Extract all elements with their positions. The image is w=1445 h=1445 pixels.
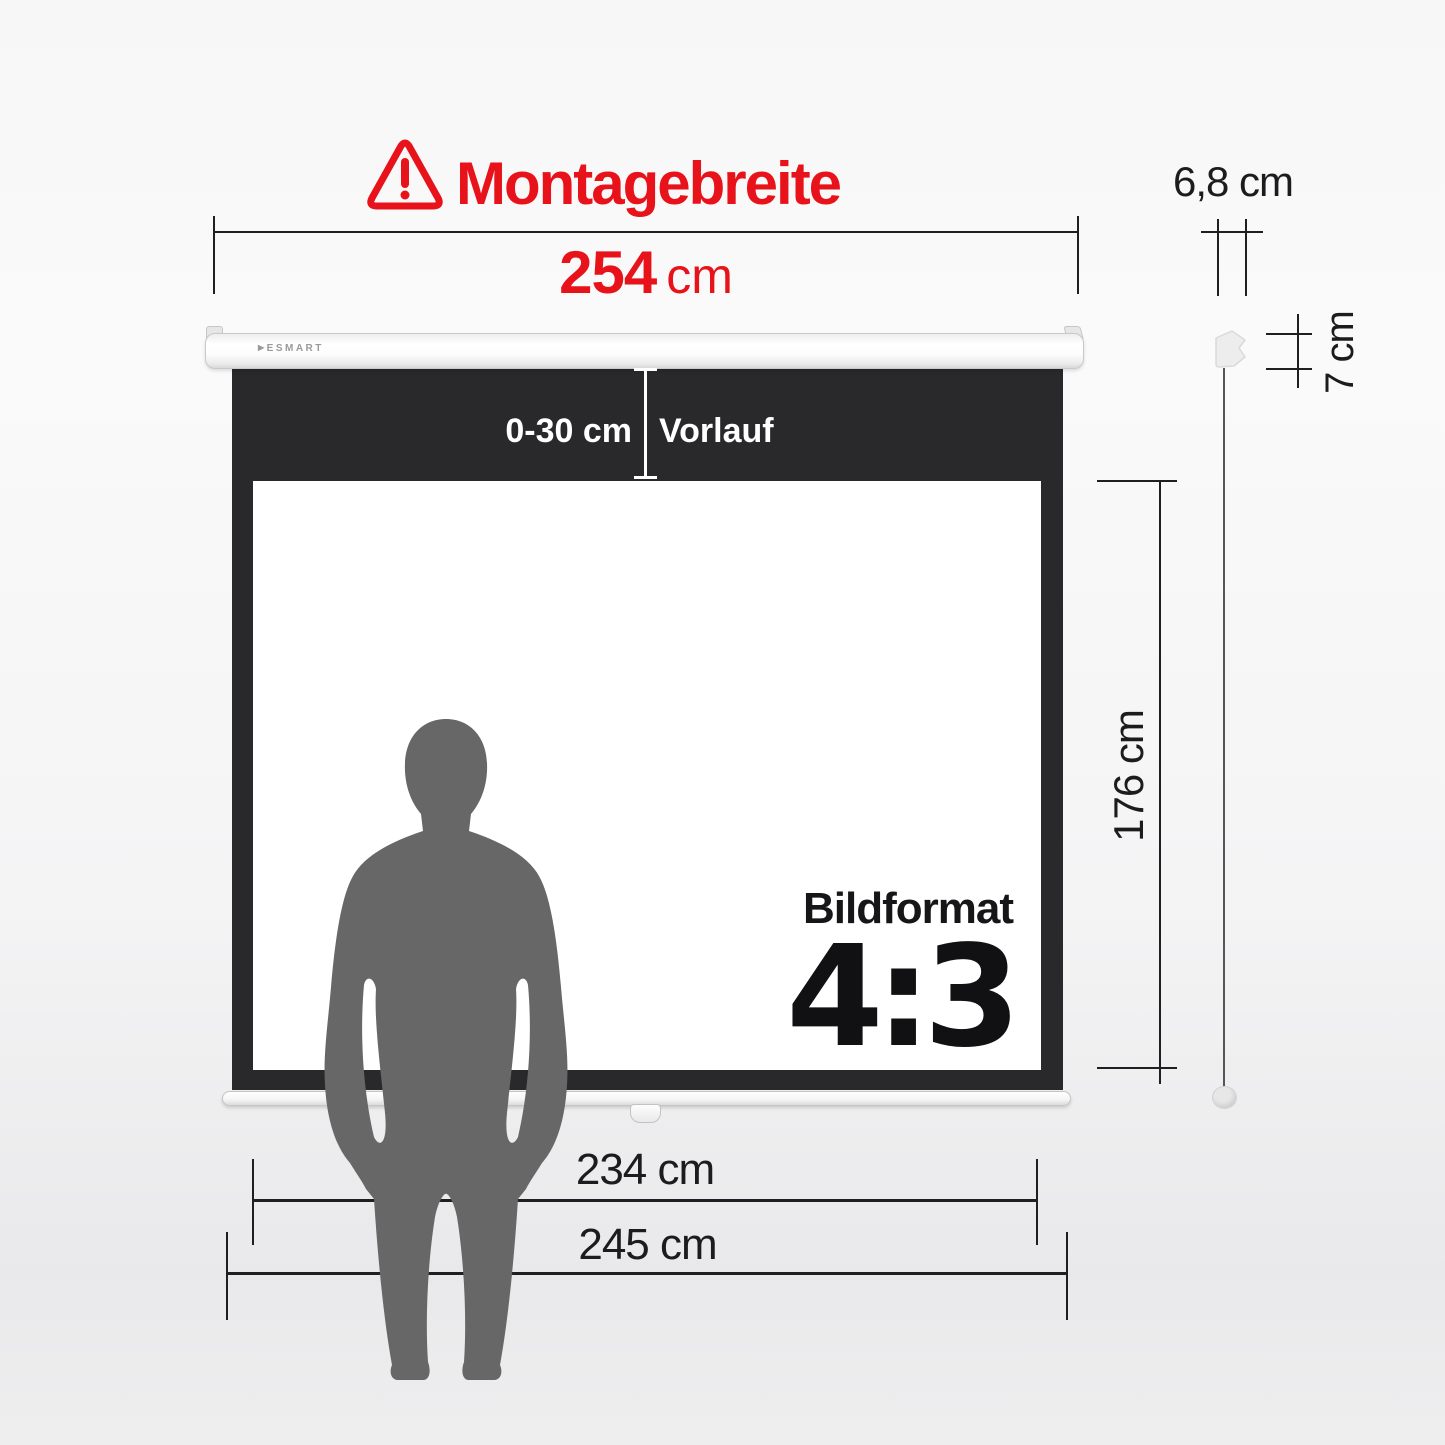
pull-cord xyxy=(1223,368,1225,1090)
warning-icon xyxy=(366,138,444,214)
vorlauf-arrow-line xyxy=(644,368,647,479)
brand-name: ESMART xyxy=(267,343,324,354)
top-dim-number: 254 xyxy=(559,239,656,306)
top-dim-value: 254cm xyxy=(214,238,1078,307)
montagebreite-header: Montagebreite xyxy=(366,138,840,222)
case-width-tick-right xyxy=(1066,1232,1068,1320)
person-silhouette xyxy=(312,713,580,1385)
vorlauf-arrow-cap-top xyxy=(634,368,657,371)
vorlauf-label: Vorlauf xyxy=(659,412,774,451)
height-dim-label: 176 cm xyxy=(1105,710,1153,842)
side-profile-bracket-icon xyxy=(1213,329,1249,369)
height-dim-label-wrap: 176 cm xyxy=(1089,696,1169,856)
height-dim-tick-bottom xyxy=(1097,1067,1177,1069)
depth-dim-label-wrap: 7 cm xyxy=(1302,311,1378,393)
case-width-tick-left xyxy=(226,1232,228,1320)
pull-handle xyxy=(630,1104,661,1123)
pull-cord-ball xyxy=(1212,1086,1237,1109)
screen-housing xyxy=(205,333,1084,369)
width-dim-cross xyxy=(1201,231,1263,233)
montagebreite-title: Montagebreite xyxy=(456,146,840,222)
top-dim-line xyxy=(214,231,1078,233)
width-dim-label: 6,8 cm xyxy=(1151,158,1315,206)
vorlauf-range: 0-30 cm xyxy=(380,412,632,451)
vorlauf-arrow-cap-bottom xyxy=(634,476,657,479)
brand-mark-icon: ▶ xyxy=(258,343,267,352)
height-dim-tick-top xyxy=(1097,480,1177,482)
format-value: 4:3 xyxy=(713,928,1013,1068)
brand-logo: ▶ESMART xyxy=(258,343,324,354)
depth-dim-label: 7 cm xyxy=(1318,311,1363,394)
top-dim-unit: cm xyxy=(666,248,733,304)
depth-dim-line xyxy=(1297,314,1299,388)
